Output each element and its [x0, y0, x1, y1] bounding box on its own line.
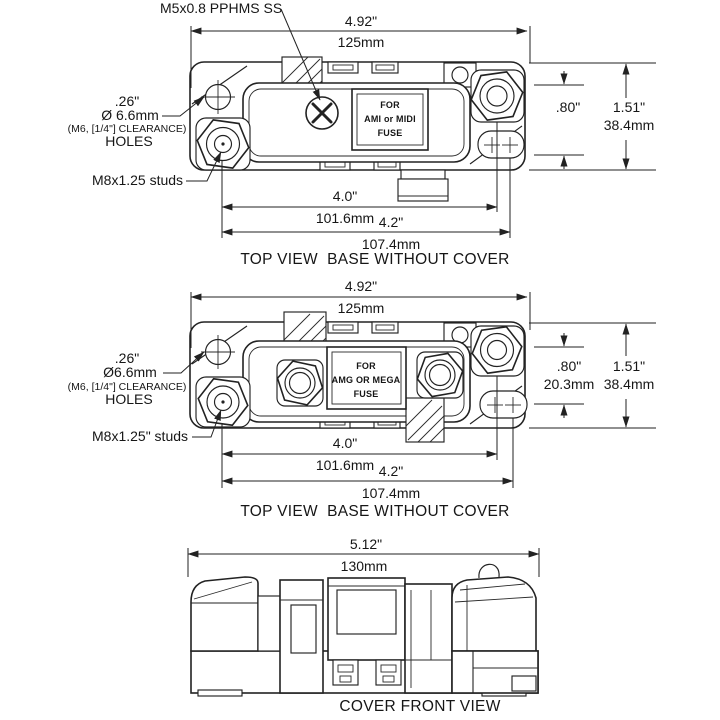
screw-callout-text: M5x0.8 PPHMS SS	[160, 0, 282, 16]
stud-top-right	[469, 325, 525, 376]
phillips-screw-left	[306, 97, 338, 129]
fuse-nut-right	[414, 351, 466, 398]
cover-body	[191, 564, 538, 696]
dim-offset-in: .80"	[557, 358, 581, 374]
fuse-nut-left	[273, 359, 326, 407]
dim-offset-right: .80"	[534, 71, 584, 169]
cover-right-base	[452, 651, 538, 693]
view3-caption: COVER FRONT VIEW	[339, 698, 500, 715]
fuse-label-line2: AMI or MIDI	[364, 114, 416, 124]
technical-drawing-page: FOR AMI or MIDI FUSE 4.92"	[0, 0, 720, 720]
view1-caption: TOP VIEW BASE WITHOUT COVER	[240, 251, 509, 268]
dim-height-in: 1.51"	[613, 99, 645, 115]
fuse-label-plate: FOR AMG OR MEGA FUSE	[327, 347, 406, 409]
dim-slot-span-in: 4.2"	[379, 214, 403, 230]
hole-size-mm: Ø 6.6mm	[101, 107, 159, 123]
callout-holes: .26" Ø 6.6mm (M6, [1/4"] CLEARANCE) HOLE…	[68, 93, 204, 149]
dim-width-mm: 125mm	[338, 34, 385, 50]
top-view-amg-mega: FOR AMG OR MEGA FUSE 4.92" 125mm	[68, 278, 656, 520]
dim-cover-width-mm: 130mm	[341, 558, 388, 574]
cover-latch-bottom	[406, 398, 444, 442]
dim-offset-right: .80" 20.3mm	[534, 333, 594, 418]
dim-height-mm: 38.4mm	[604, 117, 655, 133]
dim-stud-span-mm: 101.6mm	[316, 457, 374, 473]
cover-hook-loop	[479, 564, 499, 578]
dim-width-in: 4.92"	[345, 13, 377, 29]
hole-word: HOLES	[105, 391, 152, 407]
dim-height-in: 1.51"	[613, 358, 645, 374]
alignment-pin-hole	[452, 67, 468, 83]
stud-callout-text: M8x1.25 studs	[92, 172, 183, 188]
stud-bottom-left	[194, 118, 252, 170]
fuse-block-drawing: FOR AMI or MIDI FUSE 4.92"	[0, 0, 720, 720]
dim-height-mm: 38.4mm	[604, 376, 655, 392]
cover-front-view: 5.12" 130mm	[188, 536, 539, 715]
slotted-hole	[478, 131, 524, 158]
hole-size-mm: Ø6.6mm	[103, 364, 157, 380]
fuse-label-line1: FOR	[380, 100, 400, 110]
cover-section-2	[280, 580, 323, 693]
dim-slot-span-mm: 107.4mm	[362, 236, 420, 252]
cover-section-4	[405, 584, 452, 693]
fuse-label-line1: FOR	[356, 361, 376, 371]
hole-word: HOLES	[105, 133, 152, 149]
dim-offset-mm: 20.3mm	[544, 376, 595, 392]
dim-stud-span-in: 4.0"	[333, 435, 357, 451]
fuse-label-line3: FUSE	[378, 128, 403, 138]
dim-cover-width-in: 5.12"	[350, 536, 382, 552]
dim-stud-span-in: 4.0"	[333, 188, 357, 204]
bottom-connector-tab	[398, 170, 448, 201]
slotted-hole	[480, 391, 527, 418]
cover-left-cap	[191, 577, 258, 651]
view2-caption: TOP VIEW BASE WITHOUT COVER	[240, 503, 509, 520]
fuse-label-line3: FUSE	[354, 389, 379, 399]
dim-offset-in: .80"	[556, 99, 580, 115]
cover-shoulder	[258, 596, 280, 651]
stud-top-right	[468, 70, 526, 122]
dim-slot-span-mm: 107.4mm	[362, 485, 420, 501]
stud-callout-text: M8x1.25" studs	[92, 428, 188, 444]
stud-bottom-left	[195, 377, 251, 427]
dim-width-in: 4.92"	[345, 278, 377, 294]
callout-holes: .26" Ø6.6mm (M6, [1/4"] CLEARANCE) HOLES	[68, 350, 204, 407]
fuse-label-plate: FOR AMI or MIDI FUSE	[352, 89, 428, 150]
fuse-label-line2: AMG OR MEGA	[332, 375, 401, 385]
dim-slot-span-in: 4.2"	[379, 463, 403, 479]
dim-width-mm: 125mm	[338, 300, 385, 316]
dim-stud-span-mm: 101.6mm	[316, 210, 374, 226]
cover-right-cap	[452, 577, 536, 651]
dim-height-right: 1.51" 38.4mm	[529, 63, 656, 170]
top-view-ami-midi: FOR AMI or MIDI FUSE 4.92"	[68, 0, 656, 268]
